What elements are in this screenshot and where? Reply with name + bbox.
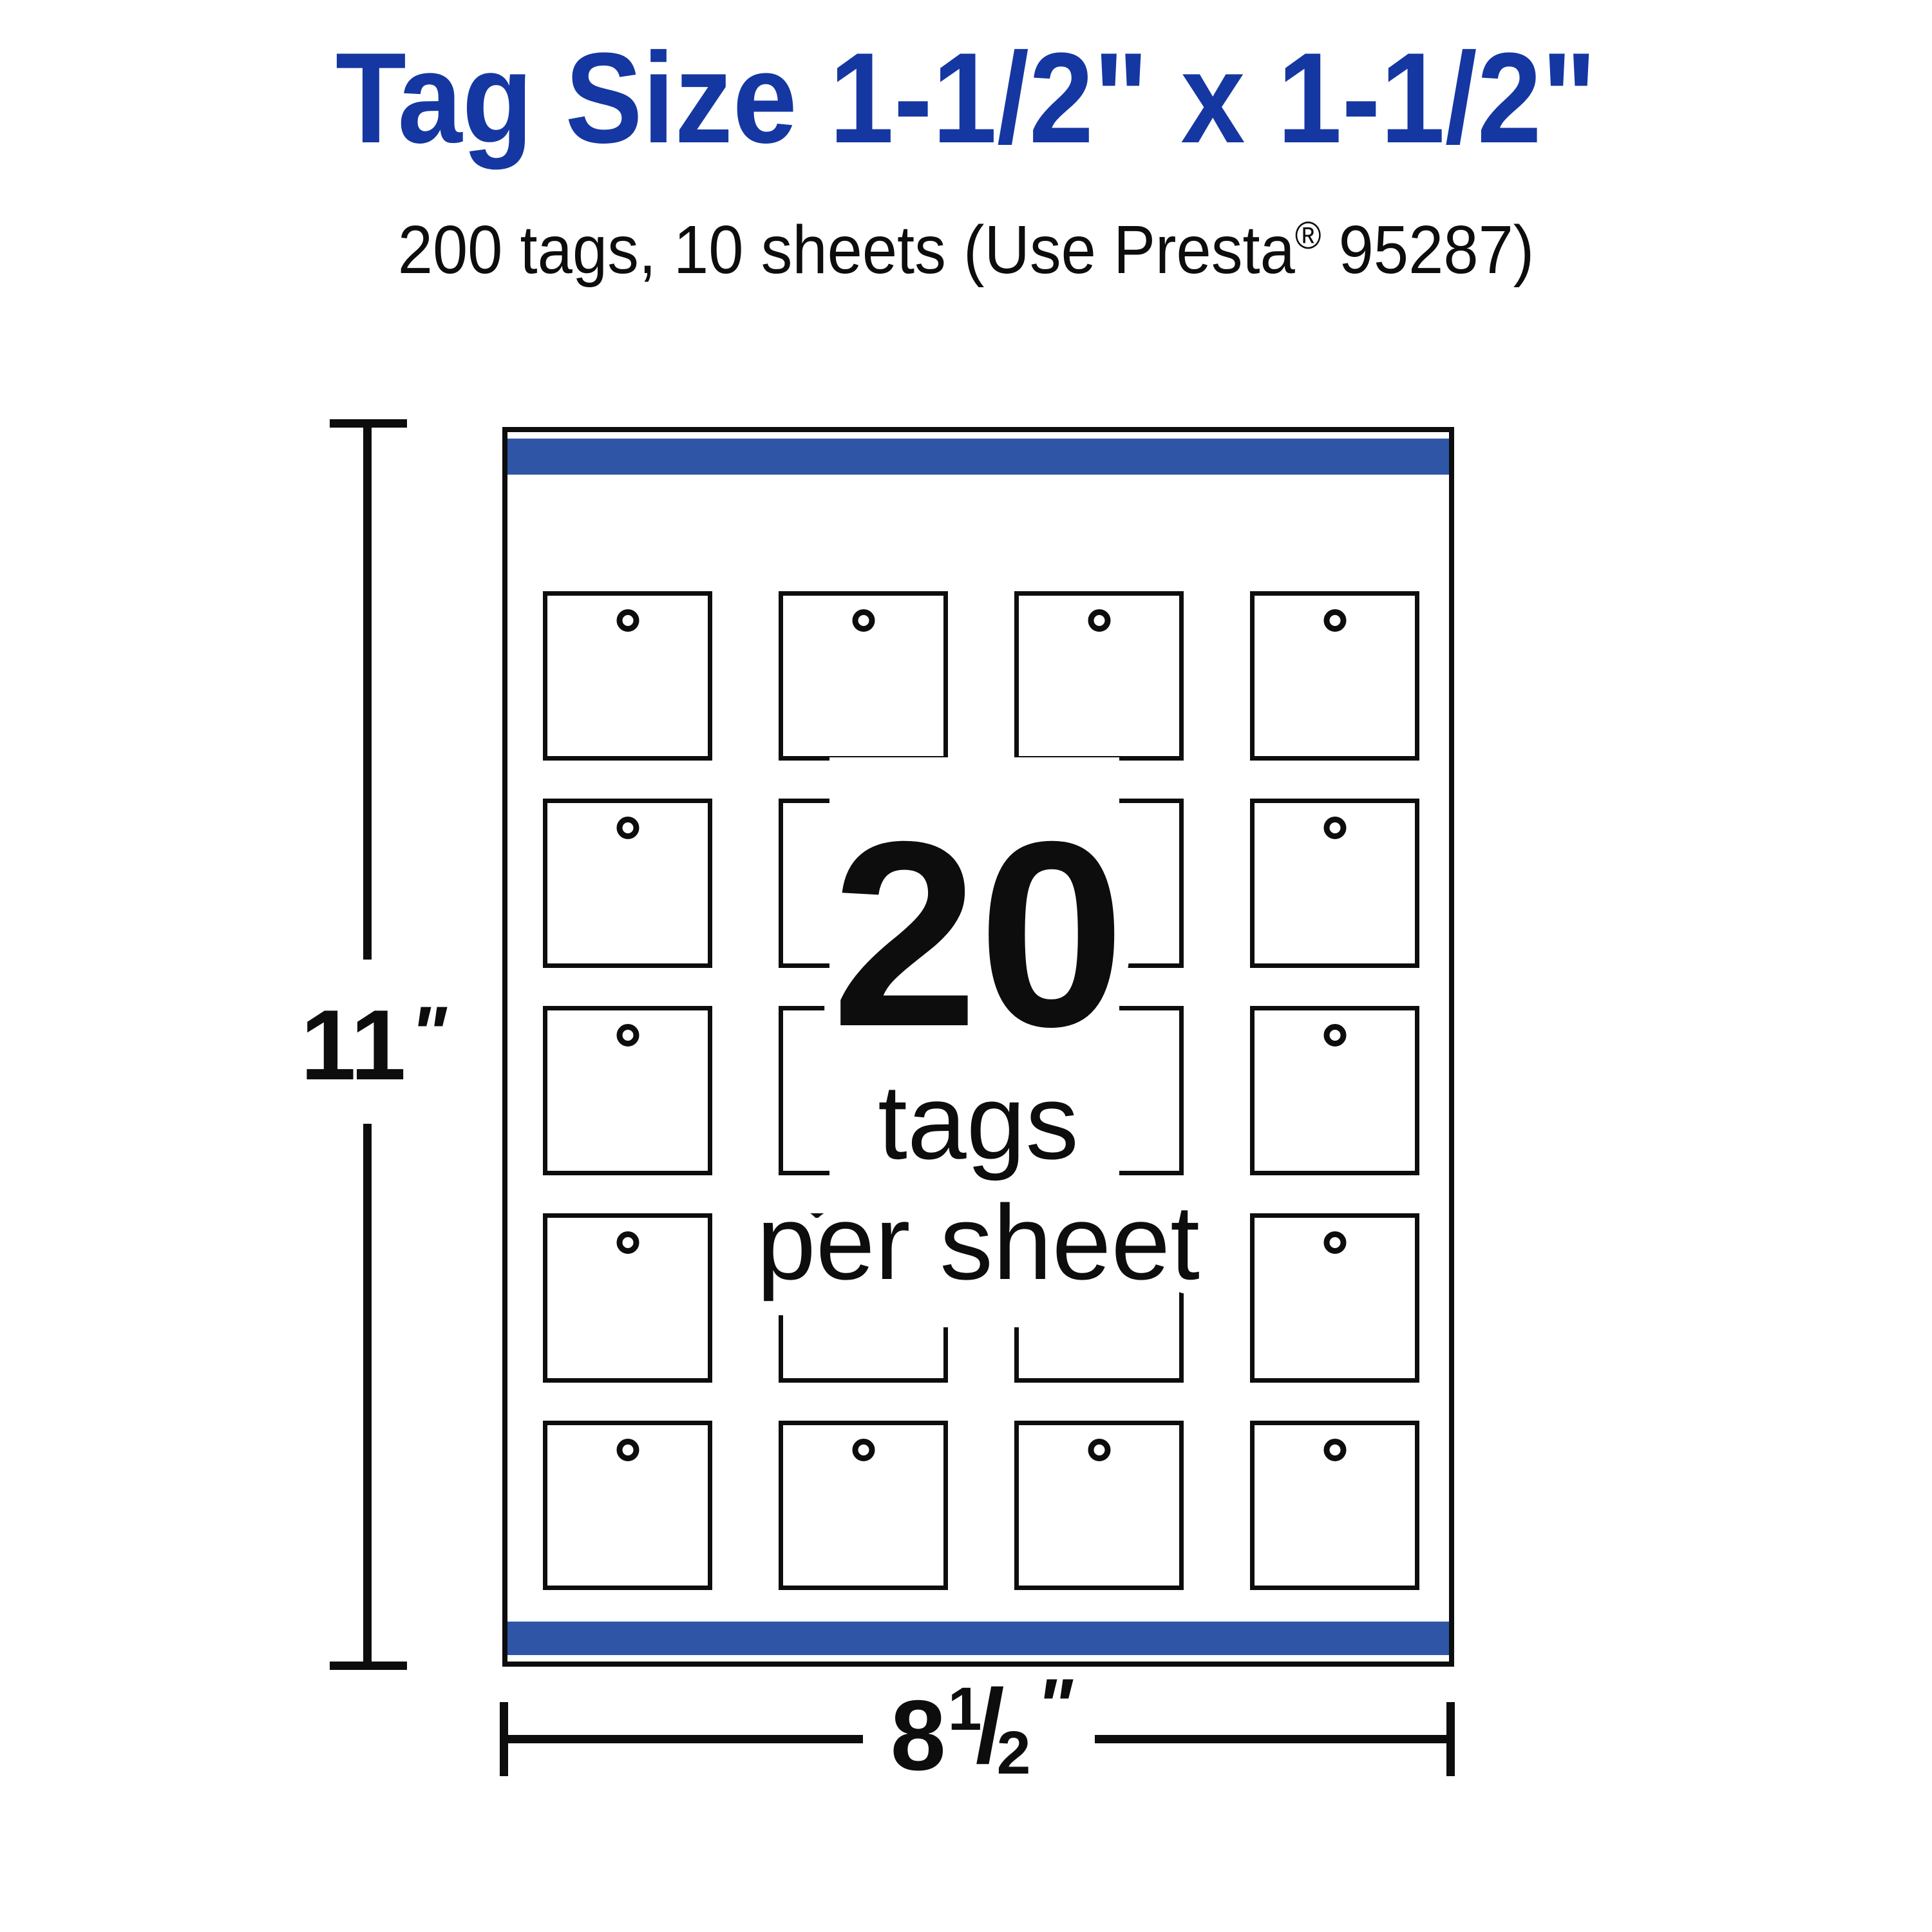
height-dimension-line-lower [363,1124,372,1665]
height-dimension-label: 11" [245,995,497,1095]
tags-per-sheet-count: 20 [831,786,1125,1081]
page-title: Tag Size 1-1/2" x 1-1/2" [97,31,1835,166]
width-fraction-denominator: 2 [997,1719,1031,1787]
tags-per-sheet-label-line1: tags [878,1063,1079,1181]
subtitle-text: 200 tags, 10 sheets (Use Presta [398,212,1295,288]
height-value: 11 [301,989,406,1101]
sheet-diagram: 20 tags per sheet [502,427,1454,1667]
width-dimension-line-right [1095,1735,1449,1743]
width-dimension-line-left [508,1735,863,1743]
height-dimension-line-upper [363,423,372,960]
tags-per-sheet-overlay: 20 tags per sheet [507,432,1449,1662]
height-inch-mark: " [410,990,441,1077]
width-whole: 8 [891,1680,946,1791]
height-dimension-tick-bottom [330,1662,407,1670]
subtitle-sku: 95287) [1321,212,1535,288]
page-subtitle: 200 tags, 10 sheets (Use Presta® 95287) [77,213,1855,288]
width-dimension-tick-left [500,1702,508,1776]
width-inch-mark: " [1036,1663,1068,1749]
tags-per-sheet-label-line2: per sheet [757,1183,1200,1302]
width-dimension-label: 81/2" [857,1682,1101,1786]
registered-trademark-icon: ® [1295,214,1321,257]
width-dimension-tick-right [1446,1702,1455,1776]
